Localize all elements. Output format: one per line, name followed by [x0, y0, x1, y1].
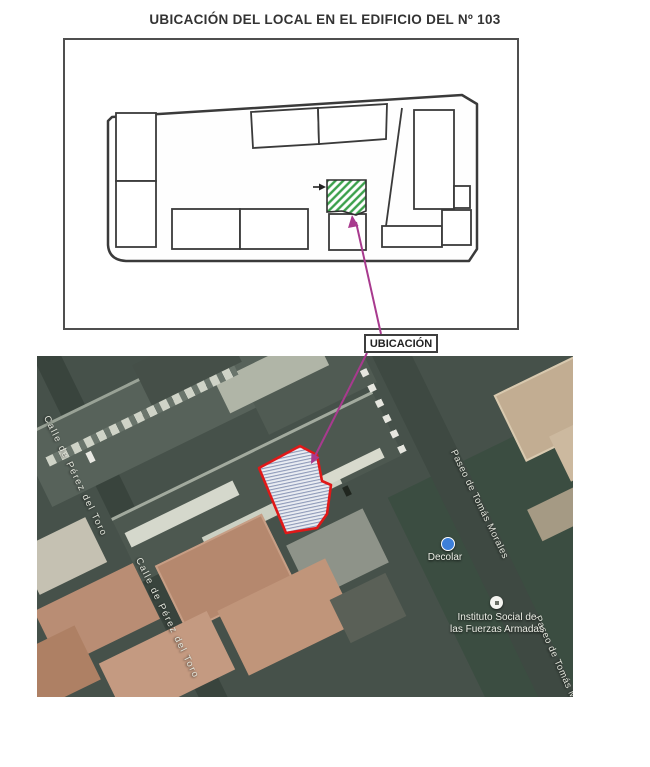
plan-building — [172, 209, 240, 249]
map-car — [342, 485, 352, 497]
plan-street-bottom-label: C/ PASEO TOMAS MORALES — [104, 271, 534, 291]
decolar-poi-label: Decolar — [415, 552, 475, 563]
instituto-poi-label-line1: Instituto Social de — [427, 612, 567, 624]
plan-building — [329, 214, 366, 250]
pointer-arrowhead-up — [348, 215, 359, 228]
plan-building — [414, 110, 454, 209]
satellite-map: Calle de Pérez del Toro Calle de Pérez d… — [37, 356, 573, 697]
plan-building — [442, 210, 471, 245]
page-title: UBICACIÓN DEL LOCAL EN EL EDIFICIO DEL N… — [0, 12, 650, 27]
ubicacion-callout: UBICACIÓN — [364, 334, 438, 353]
plan-dividing-wall — [386, 108, 402, 226]
instituto-poi-label: Instituto Social de las Fuerzas Armadas — [427, 612, 567, 636]
highlighted-local — [327, 180, 366, 215]
plan-buildings — [116, 104, 471, 250]
entrance-arrow-icon — [313, 184, 326, 191]
plan-building — [240, 209, 308, 249]
plan-building — [116, 113, 156, 181]
plan-building — [318, 104, 387, 144]
plan-building — [382, 226, 442, 247]
plan-street-top-label: C/ PEREZ DEL TORO — [64, 69, 518, 89]
plan-building — [454, 186, 470, 208]
decolar-poi-icon — [441, 537, 455, 551]
plan-building — [251, 108, 319, 148]
plan-street-right-label: AVDA. JUAN XXIII — [491, 126, 517, 234]
instituto-poi-icon-glyph — [495, 601, 499, 605]
scanned-location-page: { "title": "UBICACIÓN DEL LOCAL EN EL ED… — [0, 0, 650, 767]
plan-block-outline — [108, 95, 477, 261]
instituto-poi-label-line2: las Fuerzas Armadas — [427, 624, 567, 636]
plan-building — [116, 181, 156, 247]
